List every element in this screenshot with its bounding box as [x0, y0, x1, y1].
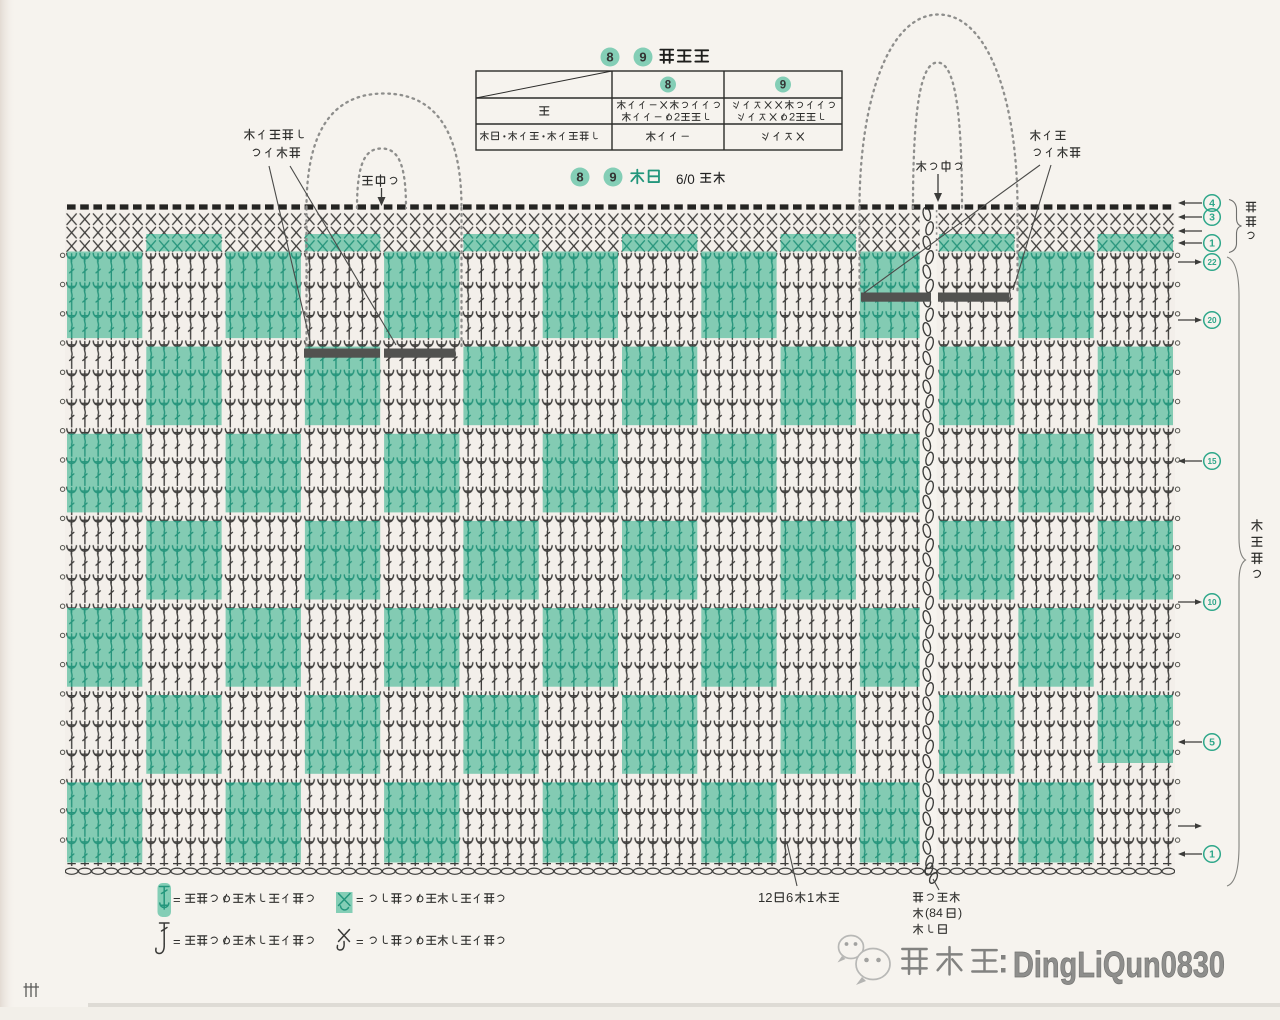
- svg-text:20: 20: [1207, 316, 1217, 325]
- svg-text:15: 15: [1207, 457, 1217, 466]
- svg-text:2: 2: [674, 112, 680, 124]
- svg-text:3: 3: [1209, 212, 1215, 224]
- svg-text:(84: (84: [925, 906, 943, 920]
- svg-text:1: 1: [1209, 238, 1215, 250]
- svg-text:=: =: [356, 934, 364, 949]
- svg-text:6: 6: [786, 890, 793, 905]
- svg-text:): ): [958, 906, 962, 920]
- svg-text:12: 12: [758, 890, 772, 905]
- svg-text:10: 10: [1207, 598, 1217, 607]
- svg-text:2: 2: [789, 112, 795, 124]
- svg-text:=: =: [356, 892, 364, 907]
- svg-text:1: 1: [807, 890, 814, 905]
- svg-text:8: 8: [576, 170, 583, 185]
- svg-text:9: 9: [609, 170, 616, 185]
- svg-text:6/0: 6/0: [676, 172, 695, 187]
- svg-text:=: =: [173, 892, 181, 907]
- svg-text:5: 5: [1209, 737, 1215, 749]
- svg-text:9: 9: [639, 50, 646, 65]
- svg-text:DingLiQun0830: DingLiQun0830: [1013, 944, 1225, 985]
- svg-text:=: =: [173, 934, 181, 949]
- svg-text:4: 4: [1209, 198, 1215, 210]
- svg-text:8: 8: [606, 50, 613, 65]
- svg-text:8: 8: [665, 80, 672, 92]
- svg-text:1: 1: [1209, 849, 1215, 861]
- svg-text:9: 9: [780, 80, 786, 92]
- svg-text:22: 22: [1207, 258, 1217, 267]
